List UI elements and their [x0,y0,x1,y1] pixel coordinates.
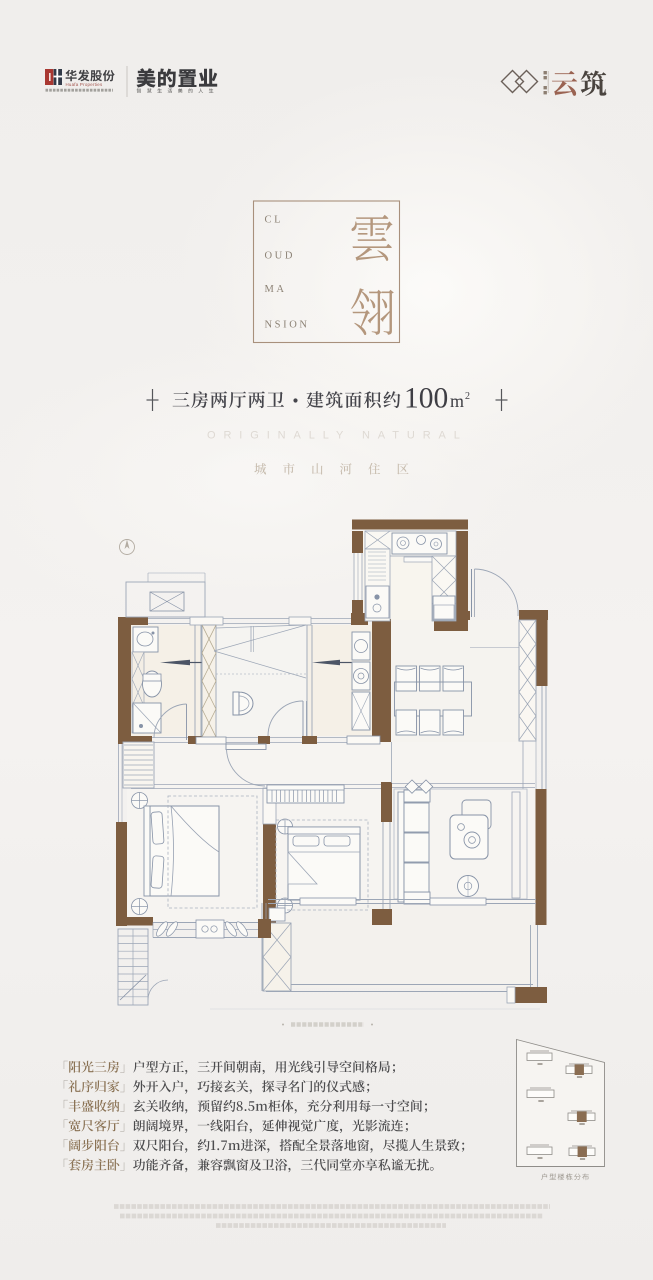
svg-text:OUD: OUD [265,251,296,262]
svg-text:CL: CL [265,215,284,226]
svg-text:Huafa Properties: Huafa Properties [66,82,104,87]
svg-text:ORIGINALLY NATURAL: ORIGINALLY NATURAL [207,430,468,442]
svg-text:MA: MA [265,284,287,295]
svg-text:2: 2 [465,391,470,402]
svg-text:100: 100 [404,383,448,415]
svg-text:NSION: NSION [265,320,310,331]
svg-text:m: m [450,391,464,411]
